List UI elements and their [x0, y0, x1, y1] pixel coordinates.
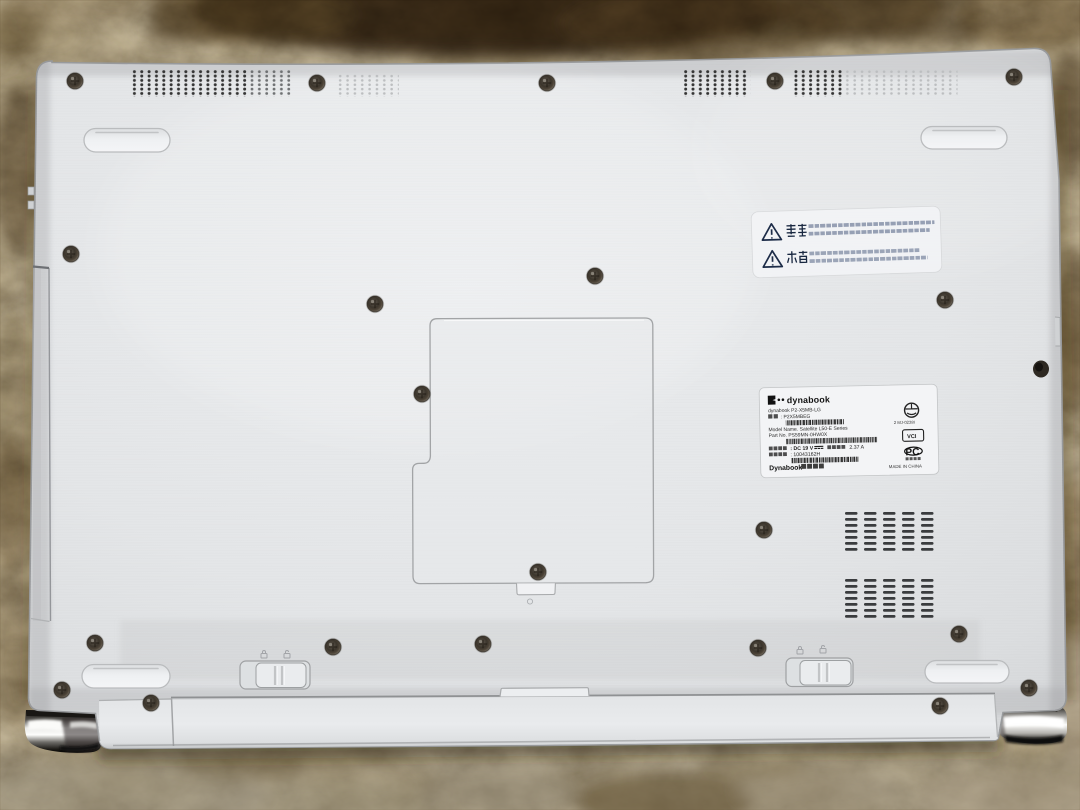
svg-text:dynabook: dynabook: [787, 394, 830, 405]
svg-text:2 MJ-0238I: 2 MJ-0238I: [894, 420, 915, 425]
svg-text:2.37 A: 2.37 A: [849, 445, 864, 451]
svg-text:PC: PC: [905, 447, 919, 458]
svg-text:VCI: VCI: [907, 434, 917, 440]
svg-text:: 10043162H: : 10043162H: [790, 452, 820, 459]
svg-text:: P2X5MBEG: : P2X5MBEG: [781, 414, 811, 421]
svg-text:Dynabook: Dynabook: [769, 465, 802, 473]
svg-text:MADE IN CHINA: MADE IN CHINA: [889, 463, 922, 469]
svg-text:Part No. PS59MN-0HW0X: Part No. PS59MN-0HW0X: [769, 432, 828, 439]
